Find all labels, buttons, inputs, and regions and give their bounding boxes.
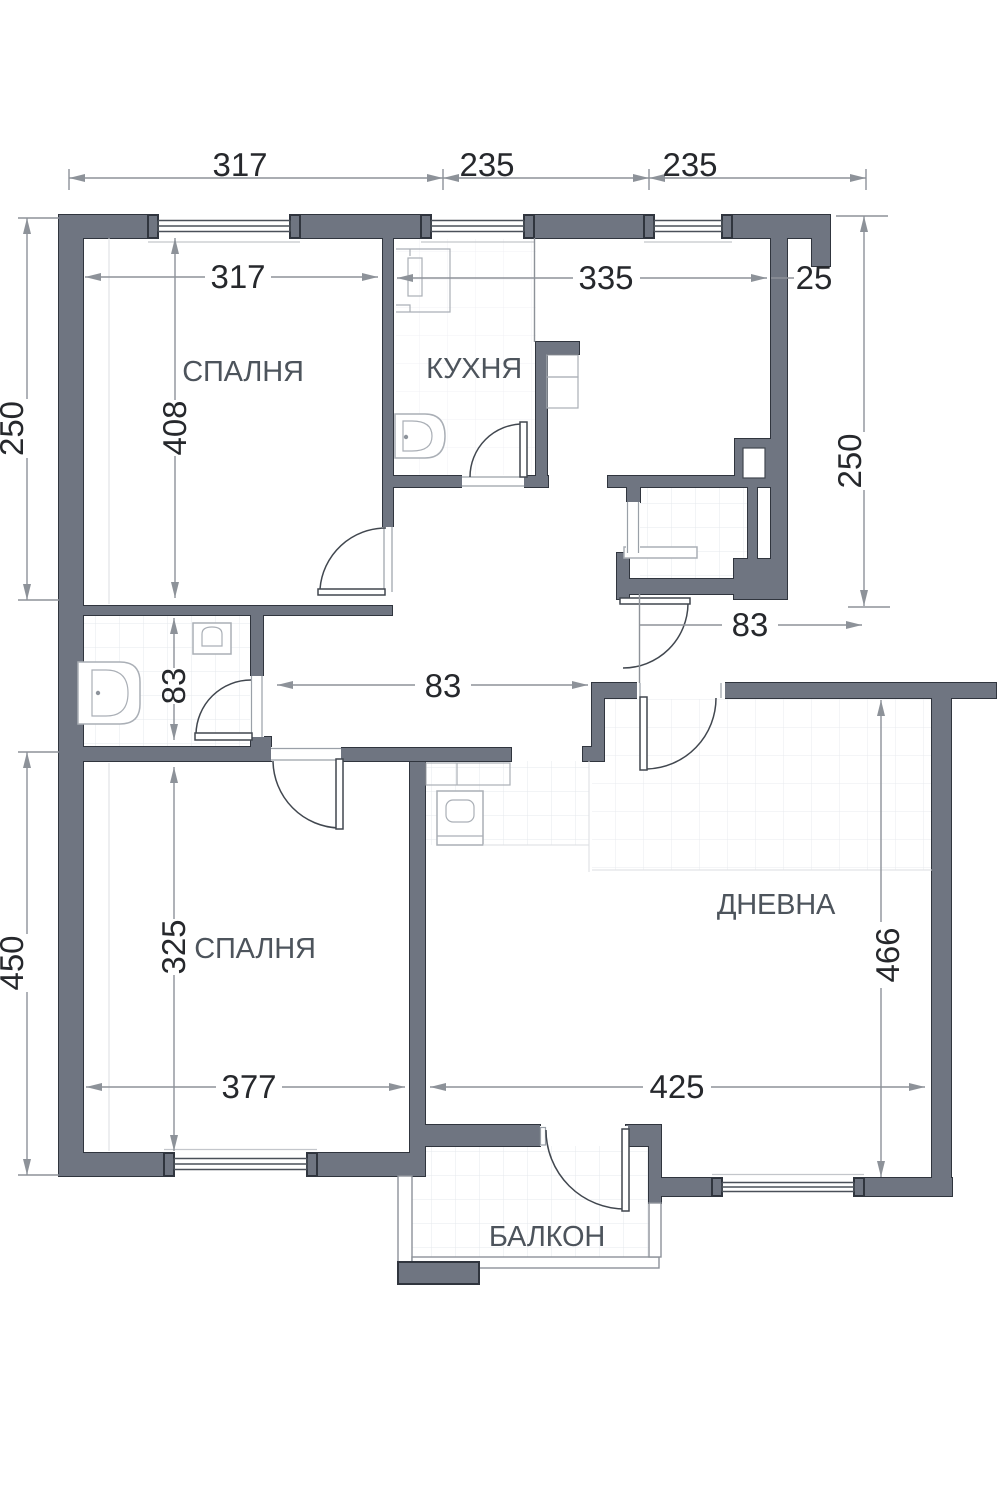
svg-text:317: 317 bbox=[210, 258, 265, 295]
svg-text:335: 335 bbox=[578, 259, 633, 296]
svg-text:466: 466 bbox=[869, 927, 906, 982]
svg-text:250: 250 bbox=[831, 433, 868, 488]
svg-text:235: 235 bbox=[459, 146, 514, 183]
svg-text:83: 83 bbox=[155, 668, 192, 705]
svg-text:ДНЕВНА: ДНЕВНА bbox=[717, 889, 836, 921]
svg-text:235: 235 bbox=[662, 146, 717, 183]
svg-text:83: 83 bbox=[425, 667, 462, 704]
svg-text:СПАЛНЯ: СПАЛНЯ bbox=[194, 933, 315, 965]
svg-text:325: 325 bbox=[155, 919, 192, 974]
svg-text:83: 83 bbox=[732, 606, 769, 643]
svg-text:СПАЛНЯ: СПАЛНЯ bbox=[182, 356, 303, 388]
svg-text:КУХНЯ: КУХНЯ bbox=[426, 353, 522, 385]
svg-text:БАЛКОН: БАЛКОН bbox=[489, 1221, 605, 1253]
svg-text:450: 450 bbox=[0, 935, 30, 990]
svg-text:425: 425 bbox=[649, 1068, 704, 1105]
svg-text:250: 250 bbox=[0, 401, 30, 456]
svg-text:408: 408 bbox=[156, 400, 193, 455]
svg-text:317: 317 bbox=[212, 146, 267, 183]
svg-text:25: 25 bbox=[796, 259, 833, 296]
svg-text:377: 377 bbox=[221, 1068, 276, 1105]
